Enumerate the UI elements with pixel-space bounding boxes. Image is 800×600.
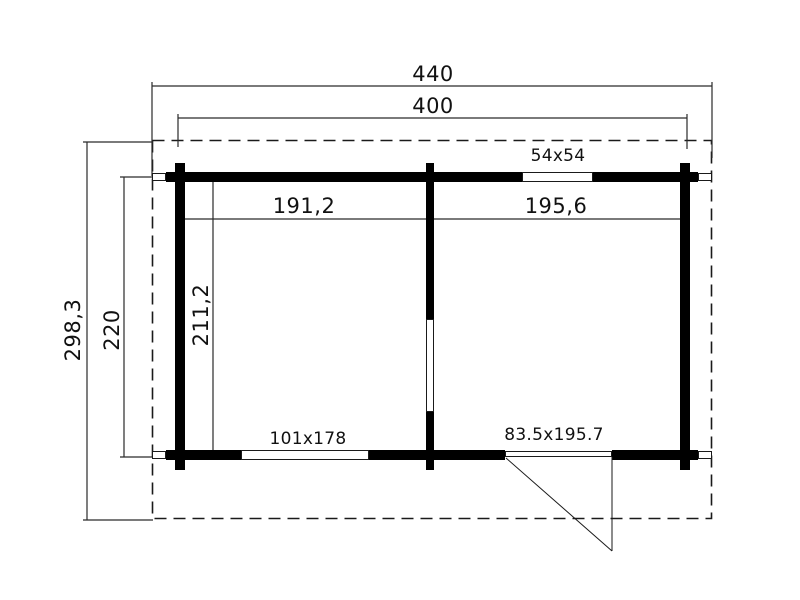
label-top-window: 54x54 — [531, 146, 586, 166]
left-wall — [175, 163, 185, 470]
dim-line-wall-width — [178, 114, 687, 149]
bottom-window-101x178 — [242, 451, 369, 460]
notch-top-left — [153, 174, 166, 181]
label-overall-depth: 298,3 — [61, 299, 85, 362]
label-overall-width: 440 — [412, 62, 454, 86]
label-inner-depth: 211,2 — [189, 284, 213, 347]
label-wall-width: 400 — [412, 94, 454, 118]
partition-wall-upper — [426, 163, 434, 319]
notch-bottom-left — [153, 452, 166, 459]
bottom-wall-segment-middle — [369, 450, 505, 460]
label-entry-door: 83.5x195.7 — [504, 425, 604, 445]
label-right-room-width: 195,6 — [525, 194, 588, 218]
notch-top-right — [699, 174, 712, 181]
top-window-54x54 — [523, 173, 593, 182]
label-bottom-window: 101x178 — [269, 429, 346, 449]
right-wall — [680, 163, 690, 470]
floor-plan-drawing — [0, 0, 800, 600]
walls — [166, 163, 698, 470]
floor-plan-canvas: 440 400 54x54 191,2 195,6 298,3 220 211,… — [0, 0, 800, 600]
partition-opening — [427, 320, 434, 412]
top-wall-segment-left — [166, 172, 522, 182]
label-left-room-width: 191,2 — [273, 194, 336, 218]
dim-line-wall-depth — [120, 177, 176, 457]
door-leaf-83x195 — [506, 452, 612, 457]
door-swing — [506, 457, 612, 551]
partition-wall-lower — [426, 412, 434, 470]
notch-bottom-right — [699, 452, 712, 459]
label-wall-depth: 220 — [100, 309, 124, 351]
